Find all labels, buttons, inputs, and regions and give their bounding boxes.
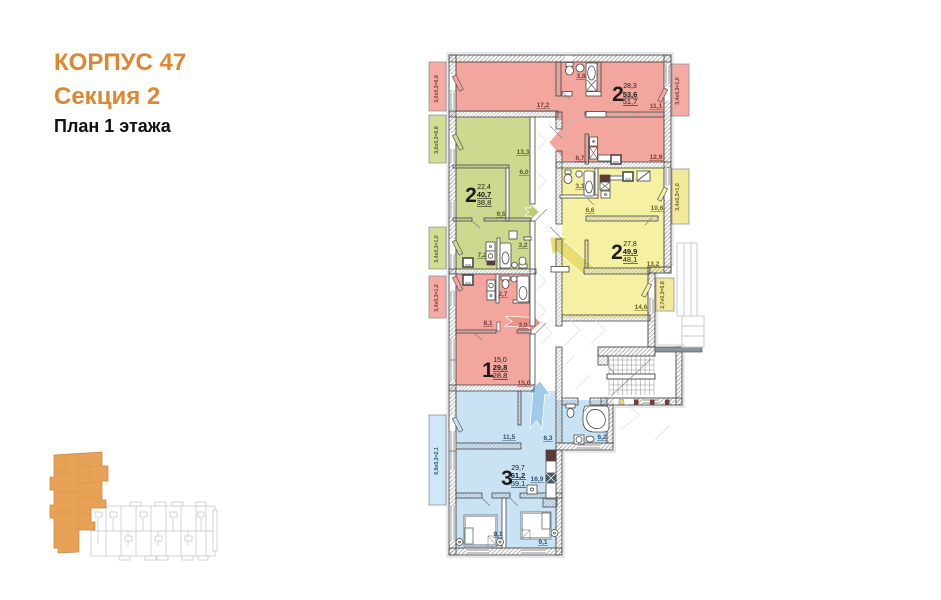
svg-text:3,2: 3,2 (518, 242, 527, 249)
svg-text:План 1 этажа: План 1 этажа (54, 116, 172, 136)
svg-text:12,9: 12,9 (650, 154, 663, 161)
svg-text:3,4х0,3=1,0: 3,4х0,3=1,0 (675, 77, 681, 105)
svg-text:9,1: 9,1 (493, 531, 502, 538)
svg-text:2: 2 (465, 184, 477, 207)
svg-text:11,5: 11,5 (503, 434, 516, 441)
svg-text:6,3: 6,3 (543, 435, 552, 442)
svg-text:14,6: 14,6 (635, 304, 648, 311)
svg-text:3,0: 3,0 (518, 322, 527, 329)
svg-text:15,0: 15,0 (518, 380, 531, 387)
svg-text:6,0: 6,0 (519, 169, 528, 176)
svg-text:3,0х0,3=0,9: 3,0х0,3=0,9 (434, 75, 440, 103)
svg-text:13,2: 13,2 (647, 261, 660, 268)
svg-text:8,1: 8,1 (483, 320, 492, 327)
svg-text:КОРПУС 47: КОРПУС 47 (54, 49, 186, 76)
svg-text:6,7: 6,7 (575, 155, 584, 162)
svg-text:2,7: 2,7 (498, 291, 507, 298)
svg-text:2,7х0,3=0,8: 2,7х0,3=0,8 (660, 281, 666, 309)
svg-text:3,8: 3,8 (576, 73, 585, 80)
svg-text:3,4х0,3=1,0: 3,4х0,3=1,0 (434, 284, 440, 312)
svg-text:38,8: 38,8 (477, 198, 492, 207)
svg-text:11,1: 11,1 (650, 103, 663, 110)
svg-text:16,9: 16,9 (531, 476, 544, 483)
svg-text:6,2: 6,2 (597, 434, 606, 441)
svg-text:3,4х0,3=1,0: 3,4х0,3=1,0 (434, 235, 440, 263)
svg-text:6,9х0,3=2,1: 6,9х0,3=2,1 (434, 447, 440, 475)
svg-text:Секция 2: Секция 2 (54, 83, 160, 110)
svg-text:13,3: 13,3 (517, 149, 530, 156)
svg-text:48,1: 48,1 (623, 255, 638, 264)
svg-text:51,7: 51,7 (623, 97, 638, 106)
svg-text:3,4х0,3=1,0: 3,4х0,3=1,0 (675, 183, 681, 211)
svg-text:2: 2 (611, 241, 623, 264)
svg-text:17,2: 17,2 (537, 102, 550, 109)
svg-text:28,3: 28,3 (623, 83, 637, 90)
svg-text:7,2: 7,2 (477, 252, 486, 259)
svg-text:28,8: 28,8 (493, 371, 508, 380)
svg-text:9,1: 9,1 (538, 539, 547, 546)
svg-text:10,6: 10,6 (651, 205, 664, 212)
svg-text:3,1: 3,1 (575, 183, 584, 190)
svg-text:6,6: 6,6 (585, 207, 594, 214)
svg-text:3,0х0,3=0,8: 3,0х0,3=0,8 (434, 126, 440, 154)
svg-text:9,5: 9,5 (496, 211, 505, 218)
svg-text:59,1: 59,1 (511, 479, 526, 488)
